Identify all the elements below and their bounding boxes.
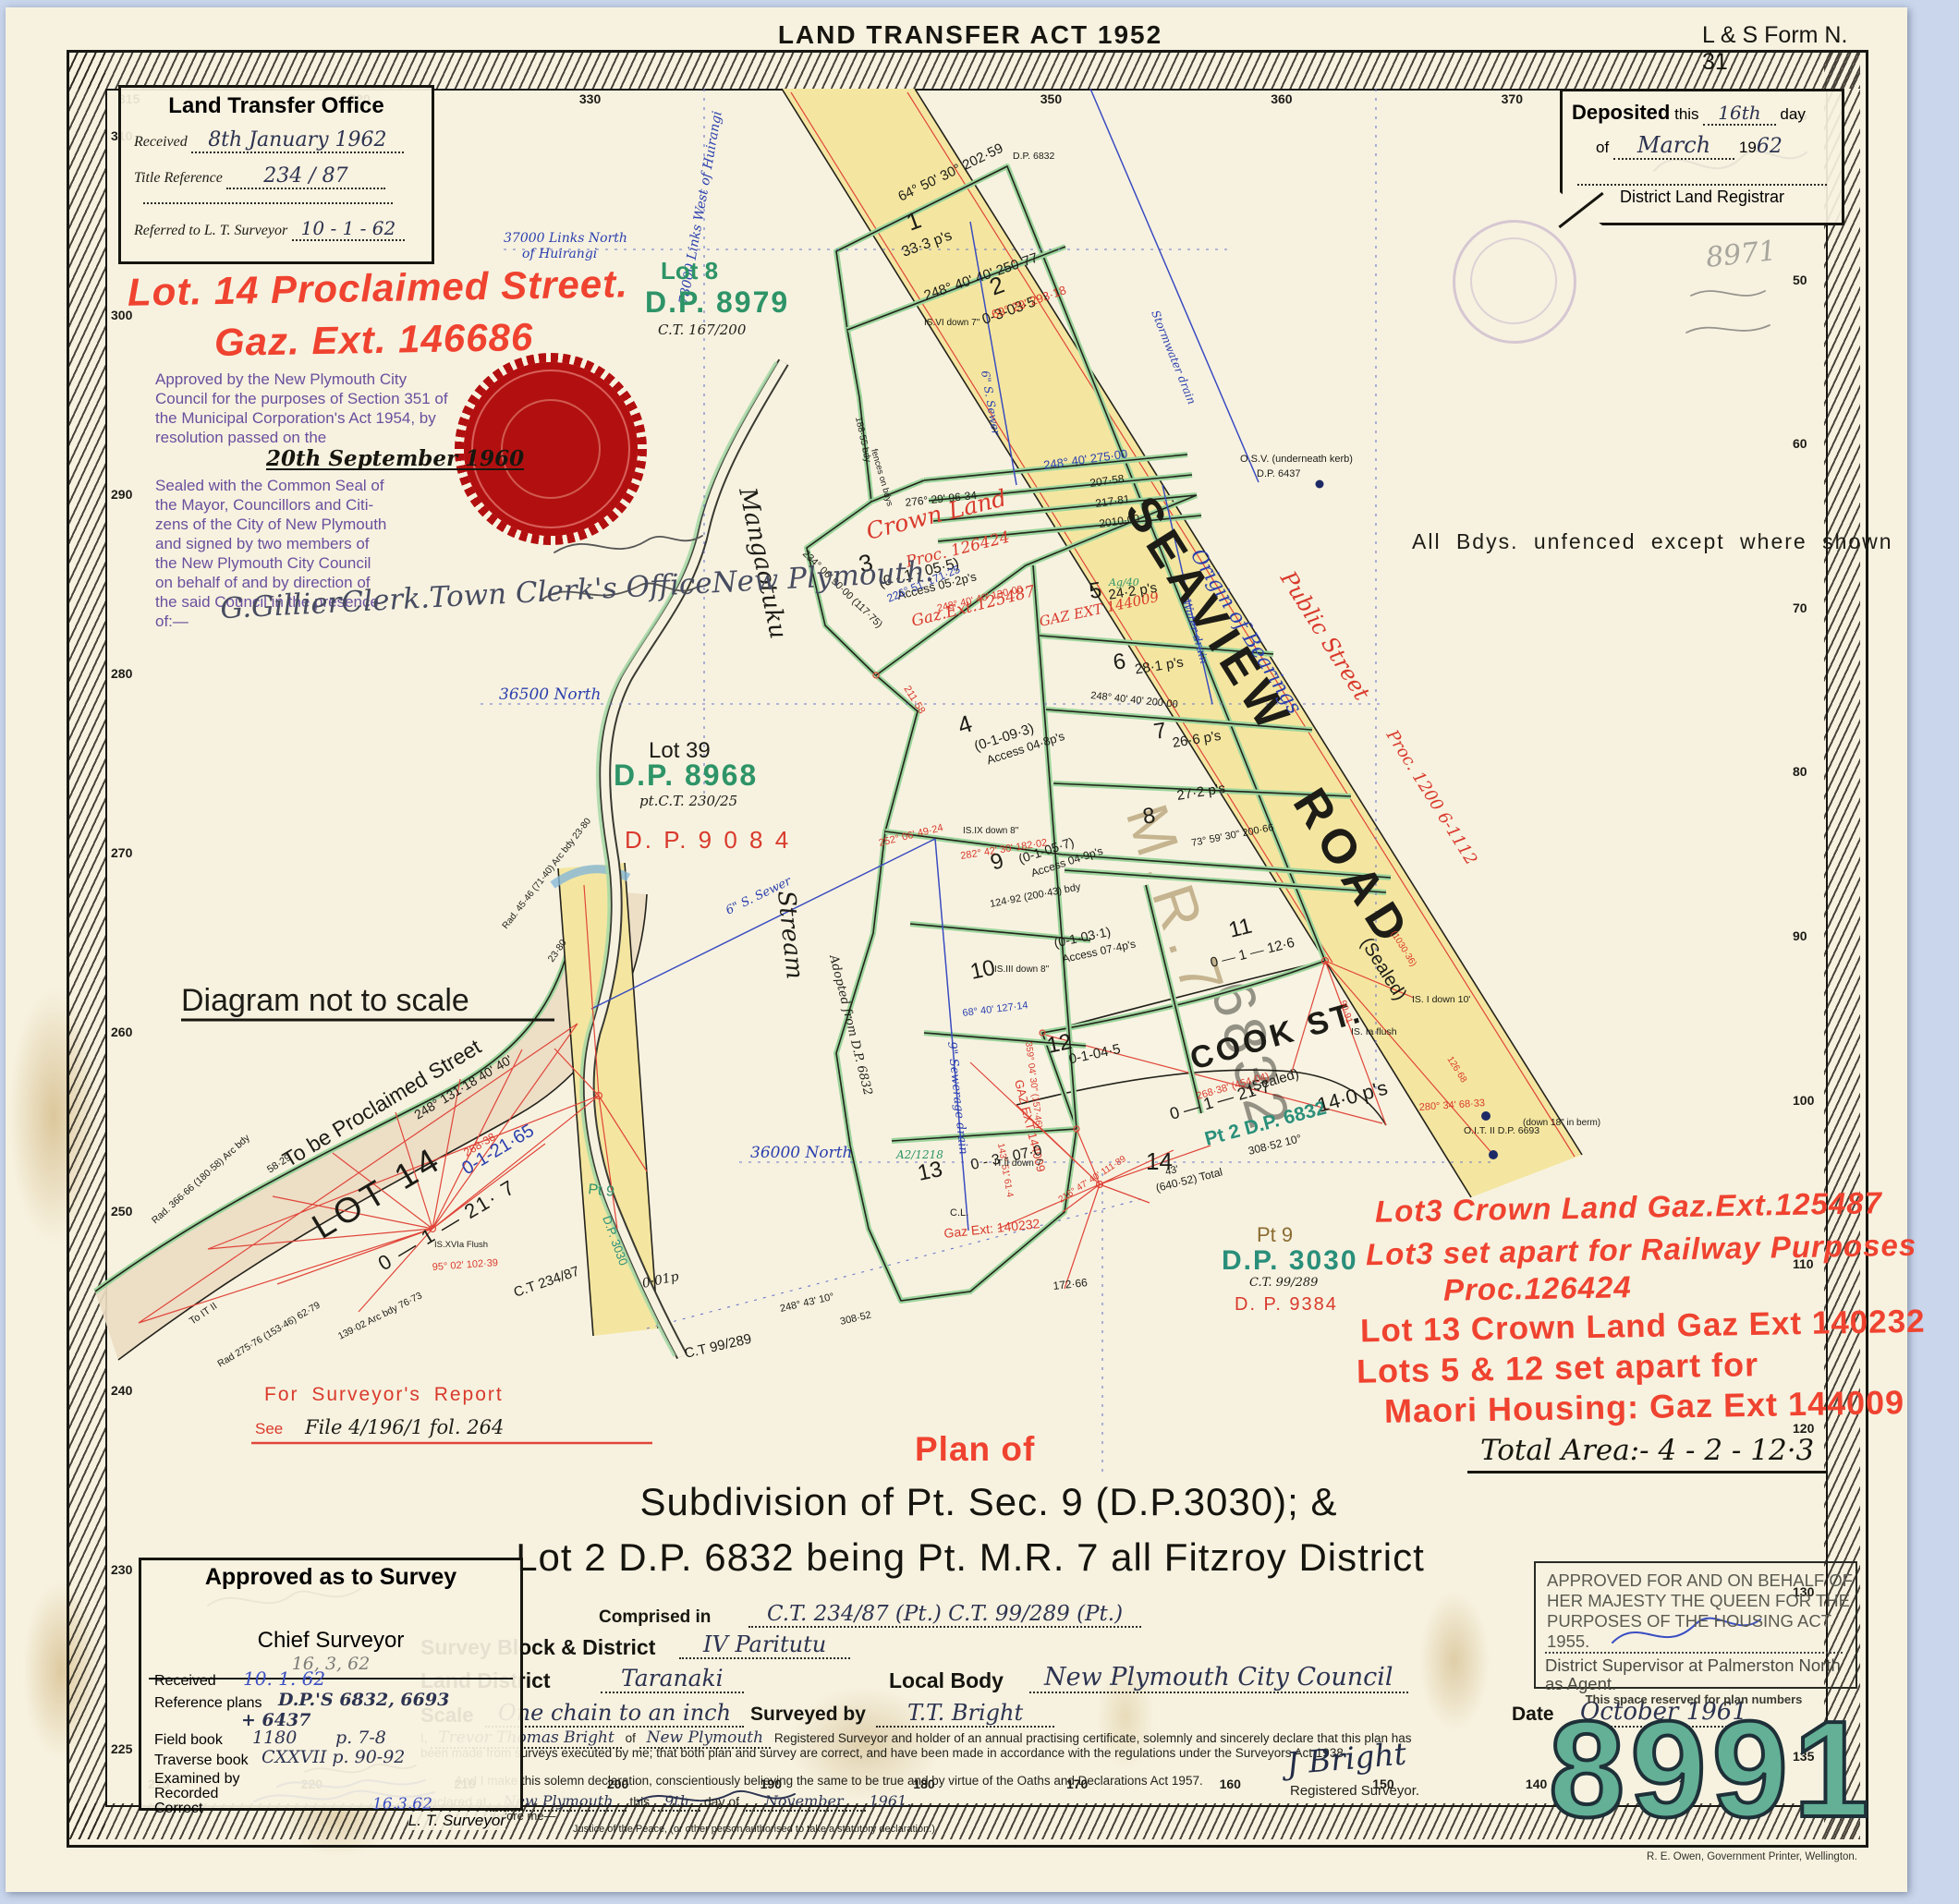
approved-title: Approved as to Survey [141,1564,520,1591]
deposited-year: 62 [1757,135,1783,158]
comprised-value: C.T. 234/87 (Pt.) C.T. 99/289 (Pt.) [748,1602,1141,1628]
this-label: this [1674,105,1698,123]
lt-office-referred-row: Referred to L. T. Surveyor 10 - 1 - 62 [134,217,419,239]
app-received-label: Received [154,1673,216,1690]
received-label: Received [134,134,188,150]
date-label: Date [1512,1704,1554,1726]
declared-month: November [743,1792,866,1812]
hatch-band-left [69,53,105,1839]
plan-title-line1: Subdivision of Pt. Sec. 9 (D.P.3030); & [444,1480,1534,1524]
plan-of-label: Plan of [915,1430,1035,1469]
deposited-plan-number: 8991 [1549,1702,1859,1838]
received-value: 8th January 1962 [191,128,403,153]
declaration-paragraph: I, Trevor Thomas Bright of New Plymouth … [420,1731,1435,1760]
lt-surveyor-label: L. T. Surveyor [408,1812,505,1830]
ruler-numbers-left: 310300290280270260250240230225 [111,129,146,1755]
total-area: Total Area:- 4 - 2 - 12·3 [1467,1434,1827,1473]
proclaimed-street-note-line1: Lot. 14 Proclaimed Street. [128,261,629,314]
council-stamp-lines: Approved by the New Plymouth CityCouncil… [155,370,543,447]
declared-year: 1961. [869,1792,911,1810]
year-prefix: 19 [1739,139,1757,156]
declared-dayof: day of [704,1794,739,1809]
deposited-day: 16th [1703,102,1775,126]
surveyed-by-value: T.T. Bright [876,1700,1054,1728]
plan-title-line2: Lot 2 D.P. 6832 being Pt. M.R. 7 all Fit… [388,1535,1552,1580]
housing-act-box: APPROVED FOR AND ON BEHALF OFHER MAJESTY… [1534,1561,1857,1689]
proclaimed-street-note-line2: Gaz. Ext. 146686 [214,315,534,365]
deposited-row1: Deposited this 16th day [1572,101,1832,125]
deposited-row2: of March 1962 [1596,132,1832,158]
of-label: of [1596,139,1609,156]
ruler-numbers-right: 455060708090100110120130135 [1793,109,1824,1763]
housing-agent-line2: as Agent. [1545,1674,1616,1694]
deposited-label: Deposited [1572,101,1670,124]
survey-block-value: IV Paritutu [679,1631,850,1659]
app-traverse-value: CXXVII p. 90-92 [262,1747,405,1767]
red-note-3: Proc.126424 [1443,1269,1632,1308]
local-body-value: New Plymouth City Council [1029,1663,1408,1693]
lt-office-title: Land Transfer Office [121,93,432,119]
decl-of: of [626,1731,636,1745]
scale-value: One chain to an inch [485,1700,744,1728]
app-traverse-label: Traverse book [154,1752,249,1769]
app-correct-label: Correct [154,1801,202,1817]
app-field-value: 1180 [252,1728,297,1748]
app-ref-value: D.P.'S 6832, 6693 [278,1690,449,1710]
housing-lines: APPROVED FOR AND ON BEHALF OFHER MAJESTY… [1547,1570,1856,1652]
hatch-band-top [69,53,1860,89]
registered-surveyor-label: Registered Surveyor. [1290,1783,1419,1799]
registrar-label: District Land Registrar [1563,188,1842,207]
declared-this: this [629,1794,650,1809]
chief-surveyor-date: 16, 3, 62 [141,1654,520,1674]
blank-dotted-row [143,202,393,204]
app-field-pages: p. 7-8 [335,1728,386,1748]
deposited-month: March [1613,132,1734,160]
faint-round-stamp [1453,220,1576,344]
approved-as-to-survey-box: Approved as to Survey Chief Surveyor 16,… [139,1558,523,1811]
registrar-sign-line [1577,184,1827,186]
app-field-label: Field book [154,1732,223,1749]
referred-label: Referred to L. T. Surveyor [134,223,287,238]
day-label: day [1780,105,1805,123]
title-reference-label: Title Reference [134,170,223,186]
title-reference-value: 234 / 87 [226,164,384,189]
jp-label: Justice of the Peace, (or other person a… [573,1824,935,1835]
app-received-value: 10. 1. 62 [243,1668,325,1690]
lt-office-titleref-row: Title Reference 234 / 87 [134,164,419,188]
land-district-value: Taranaki [601,1665,744,1693]
deposited-box: Deposited this 16th day of March 1962 Di… [1560,89,1844,225]
page-title: LAND TRANSFER ACT 1952 [610,20,1331,50]
scanned-survey-plan-sheet: LAND TRANSFER ACT 1952 L & S Form N. 31 … [0,0,1959,1904]
form-number: L & S Form N. 31 [1702,22,1868,76]
surveyed-by-label: Surveyed by [750,1704,866,1726]
red-note-5: Lots 5 & 12 set apart for [1357,1345,1759,1391]
comprised-label: Comprised in [599,1607,711,1628]
housing-agent-line1: District Supervisor at Palmerston North [1545,1655,1841,1676]
printer-credit: R. E. Owen, Government Printer, Wellingt… [1478,1851,1857,1862]
local-body-label: Local Body [889,1668,1004,1693]
council-resolution-date: 20th September 1960 [266,449,524,470]
declared-day: 9th [653,1792,700,1812]
land-transfer-office-box: Land Transfer Office Received 8th Januar… [118,85,434,264]
chief-surveyor-label: Chief Surveyor [141,1628,520,1654]
referred-value: 10 - 1 - 62 [292,217,406,241]
lt-office-received-row: Received 8th January 1962 [134,128,419,152]
app-correct-date: 16.3.62 [372,1795,432,1813]
housing-sign-line [1545,1652,1843,1654]
